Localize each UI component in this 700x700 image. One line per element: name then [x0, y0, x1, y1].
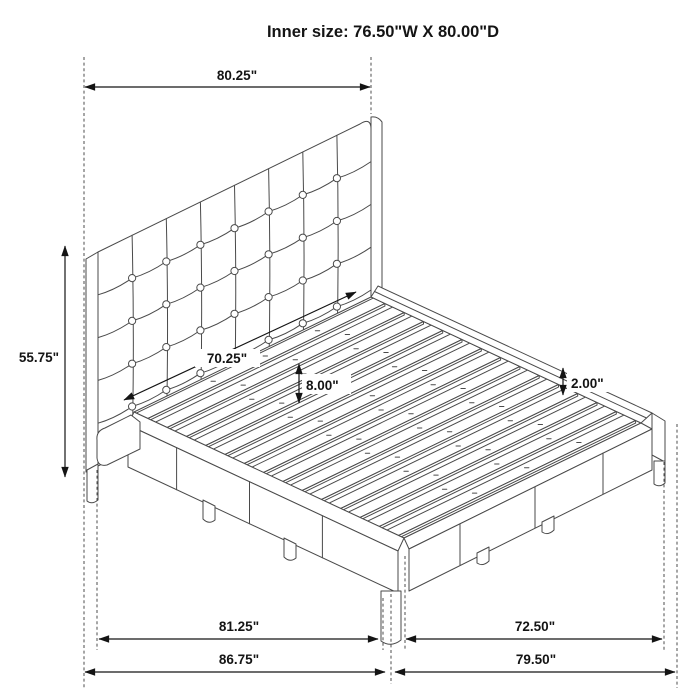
tuft-button: [333, 175, 340, 182]
tuft-button: [129, 360, 136, 367]
tuft-button: [333, 217, 340, 224]
tuft-button: [299, 277, 306, 284]
tuft-button: [231, 267, 238, 274]
tuft-button: [163, 258, 170, 265]
dimension-label: 8.00": [306, 378, 339, 393]
dim-bottom-inner-right: 72.50": [406, 619, 662, 639]
tuft-button: [129, 317, 136, 324]
tuft-button: [265, 208, 272, 215]
tuft-button: [163, 386, 170, 393]
dimension-label: 86.75": [219, 652, 259, 667]
tuft-button: [265, 294, 272, 301]
dim-bottom-outer-left: 86.75": [85, 652, 385, 672]
tuft-button: [231, 225, 238, 232]
tuft-button: [333, 303, 340, 310]
dimension-label: 70.25": [207, 351, 247, 366]
right-corner-leg: [654, 461, 665, 486]
tuft-button: [265, 251, 272, 258]
headboard-left-leg: [87, 464, 98, 503]
dimension-label: 81.25": [219, 619, 259, 634]
tuft-button: [299, 234, 306, 241]
right-rail-corner: [652, 413, 665, 462]
tuft-button: [197, 370, 204, 377]
dim-bottom-inner-left: 81.25": [99, 619, 378, 639]
tuft-button: [197, 284, 204, 291]
tuft-button: [129, 275, 136, 282]
tuft-button: [163, 344, 170, 351]
headboard-right-side: [371, 117, 382, 306]
tuft-button: [231, 310, 238, 317]
dimension-label: 79.50": [516, 652, 556, 667]
tuft-button: [197, 327, 204, 334]
dimension-label: 72.50": [515, 619, 555, 634]
tuft-button: [299, 320, 306, 327]
tuft-button: [163, 301, 170, 308]
dimension-label: 2.00": [571, 376, 604, 391]
dim-left-height: 55.75": [19, 246, 65, 477]
tuft-button: [299, 191, 306, 198]
dimension-label: 55.75": [19, 350, 59, 365]
bed-dimension-diagram: 80.25" 55.75" 70.25" 8.00" 2.00" 81.25": [0, 0, 700, 700]
tuft-button: [265, 336, 272, 343]
tuft-button: [129, 403, 136, 410]
dim-top-width: 80.25": [85, 68, 370, 87]
dim-rail-above-slats: 2.00": [563, 368, 616, 395]
diagram-title: Inner size: 76.50"W X 80.00"D: [267, 23, 499, 41]
dimension-label: 80.25": [217, 68, 257, 83]
tuft-button: [197, 241, 204, 248]
headboard-left-side: [86, 252, 98, 472]
tuft-button: [333, 260, 340, 267]
dim-bottom-outer-right: 79.50": [395, 652, 675, 672]
